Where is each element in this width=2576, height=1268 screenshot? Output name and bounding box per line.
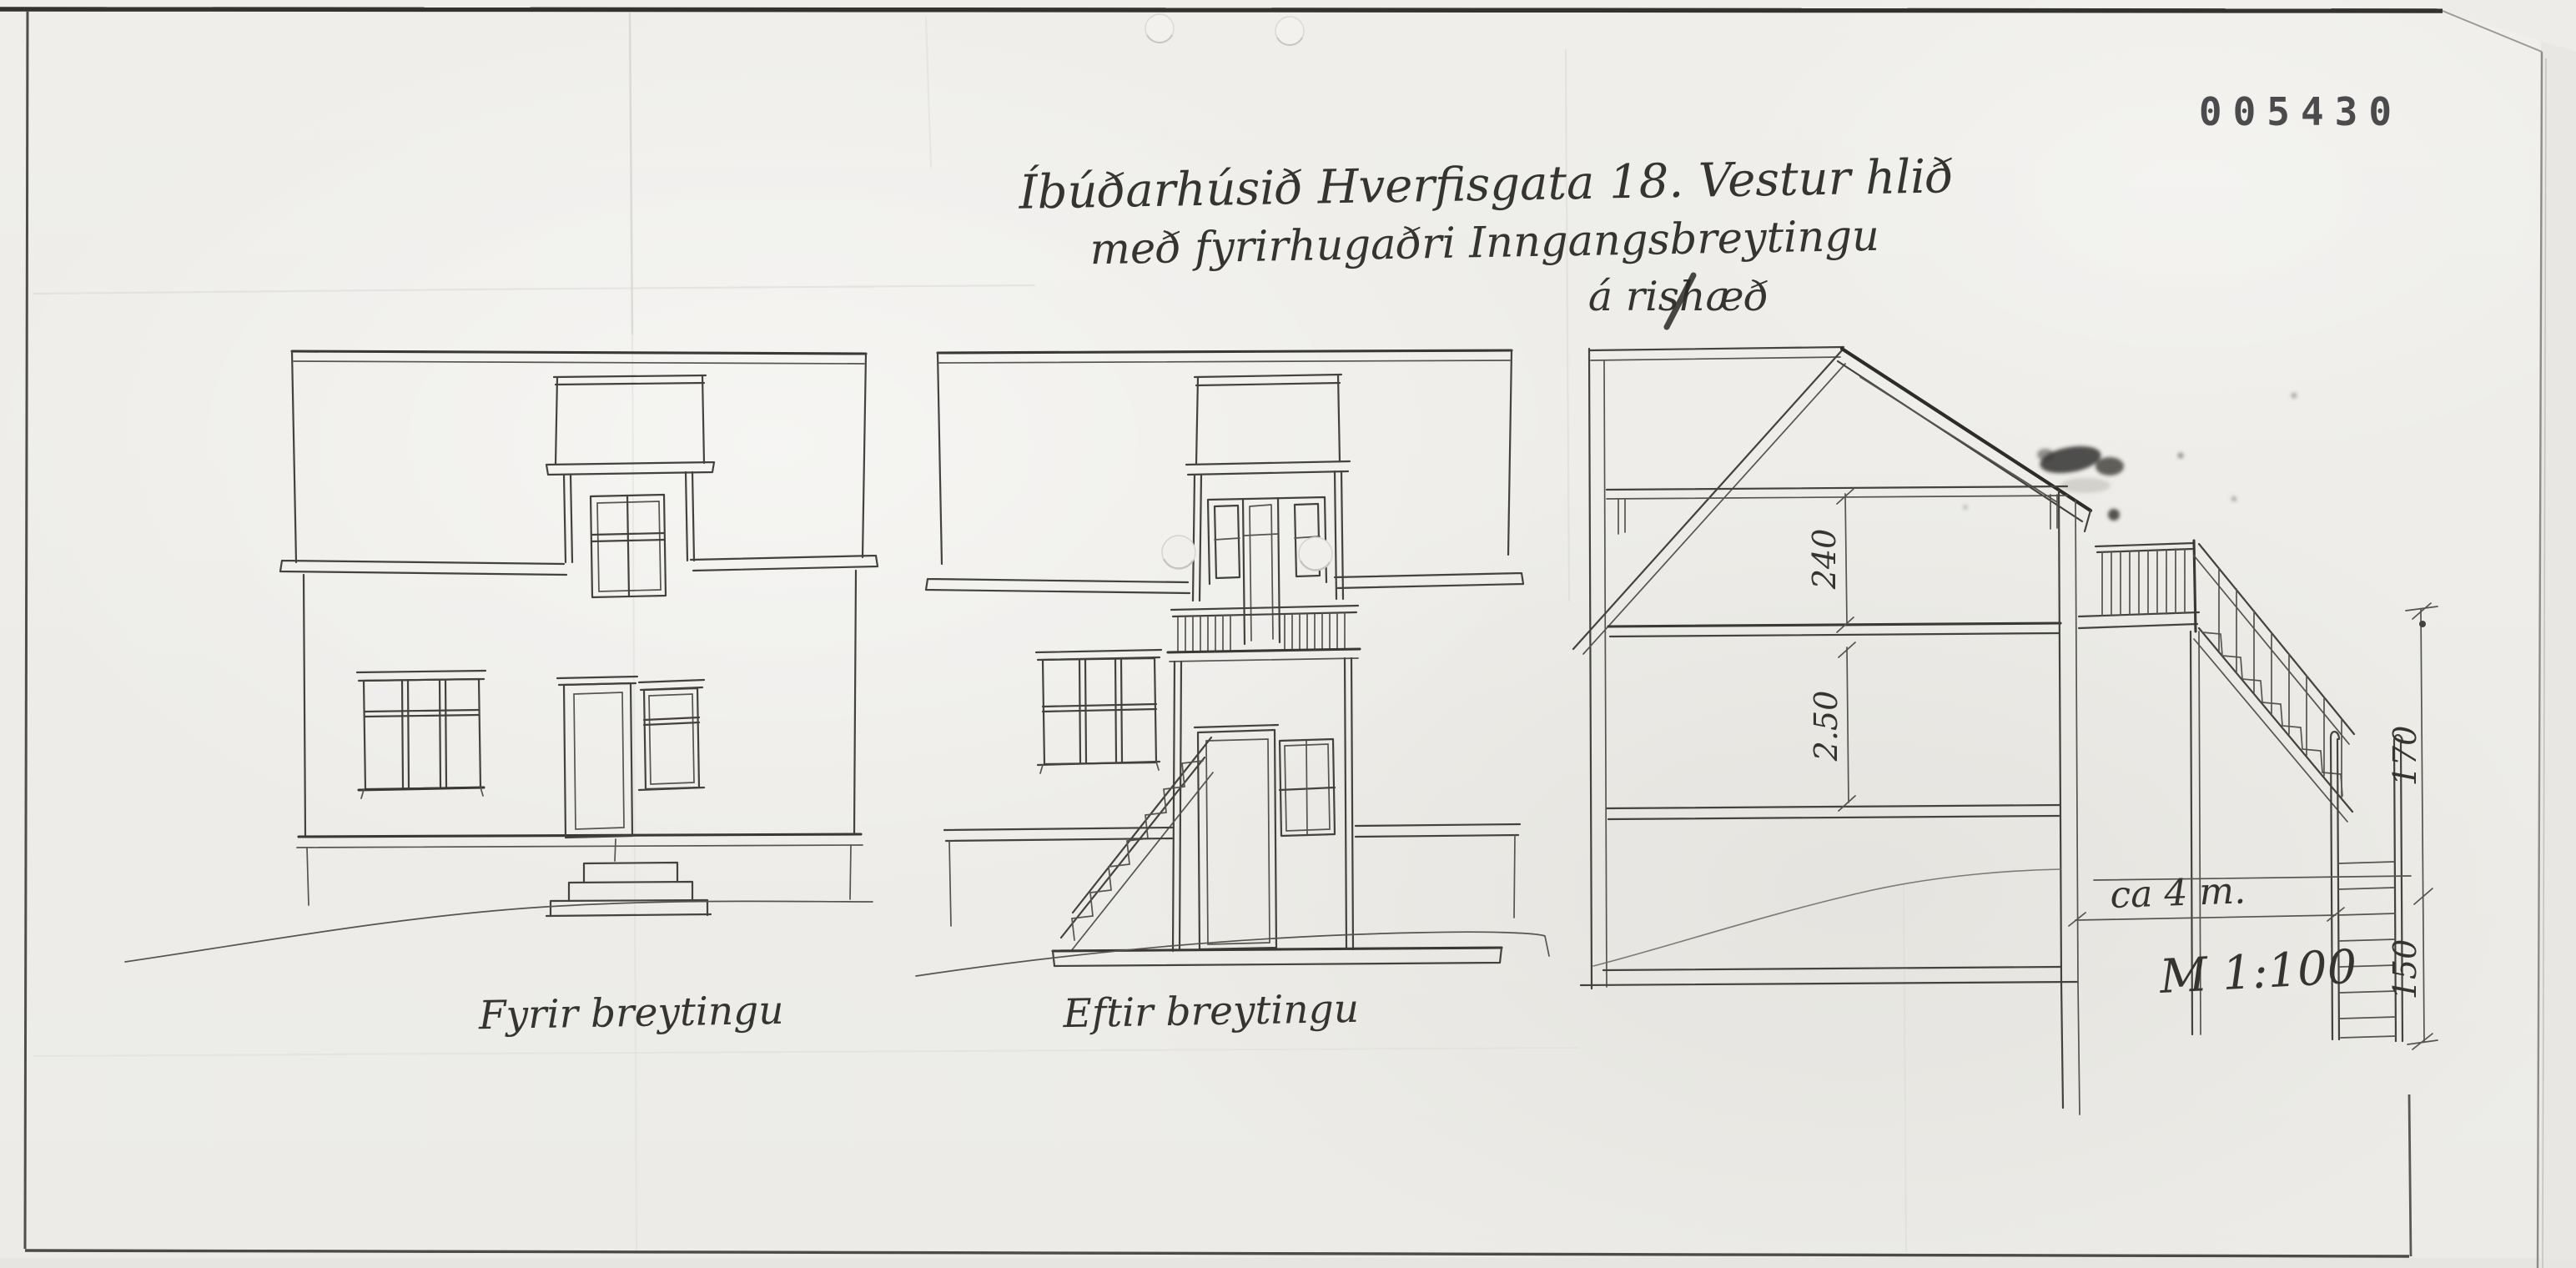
title-line2: með fyrirhugaðri Inngangsbreytingu <box>1089 212 1879 275</box>
porch-door <box>1198 730 1276 949</box>
window-left-before <box>357 671 486 798</box>
stamp-number: 005430 <box>2199 89 2402 134</box>
paper-edge-left <box>25 11 28 1249</box>
caption-before: Fyrir breytingu <box>478 988 784 1039</box>
dim-attic-height-label: 240 <box>1806 529 1843 591</box>
exterior-stair-after <box>1061 737 1213 951</box>
steps-before <box>546 863 711 916</box>
scale-label: M 1:100 <box>2157 940 2358 1004</box>
dim-stair-width-label: ca 4 m. <box>2110 869 2246 917</box>
dim-stair-upper-label: 170 <box>2387 726 2423 787</box>
dormer-door <box>1243 498 1280 644</box>
title-block: Íbúðarhúsið Hverfisgata 18. Vestur hlið … <box>1018 148 1954 327</box>
ink-smudges <box>1964 393 2297 521</box>
ground-line-before <box>125 901 873 962</box>
paper-edge-bottom <box>25 1250 2409 1256</box>
dormer-before <box>546 375 714 597</box>
drawing-canvas: 240 2.50 <box>0 0 2576 1268</box>
cross-section-drawing: 240 2.50 <box>1573 347 2438 1115</box>
door-before <box>557 677 637 861</box>
window-left-after <box>1036 650 1161 773</box>
dim-attic-height: 240 <box>1806 489 1854 632</box>
punch-holes <box>1145 14 1332 571</box>
title-line1: Íbúðarhúsið Hverfisgata 18. Vestur hlið <box>1018 148 1954 220</box>
left-rafter <box>1573 350 1842 649</box>
dim-stair-lower-label: 150 <box>2387 939 2423 1000</box>
paper-edge-bottom-right <box>2409 1094 2411 1256</box>
window-right-before <box>639 680 704 790</box>
dim-floor-height-label: 2.50 <box>1808 691 1844 762</box>
scanned-architectural-drawing: 240 2.50 <box>0 0 2576 1268</box>
elevation-before-drawing <box>125 351 878 962</box>
title-line3: á rishæð <box>1588 273 1768 320</box>
ground-line-section <box>1593 869 2060 966</box>
folded-corner-backing <box>2440 0 2576 52</box>
scan-backing-bottom <box>0 1258 2576 1268</box>
elevation-after-drawing <box>916 350 1549 976</box>
paper-edge-top <box>0 9 2443 11</box>
dormer-after <box>1186 375 1350 644</box>
dim-floor-height: 2.50 <box>1808 642 1855 811</box>
ground-line-after <box>916 932 1549 976</box>
caption-after: Eftir breytingu <box>1062 986 1359 1037</box>
dormer-sidelight-left <box>1215 506 1240 578</box>
entrance-porch <box>1173 658 1353 951</box>
balcony-balustrade <box>1168 606 1360 662</box>
